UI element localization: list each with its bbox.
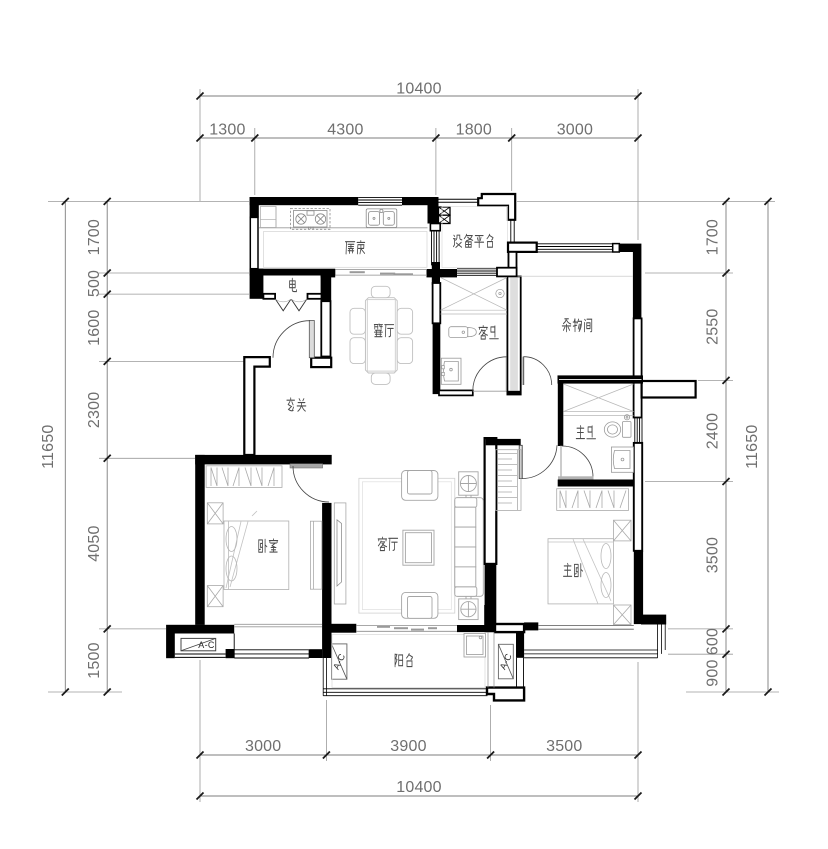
svg-text:500: 500 (86, 270, 103, 297)
svg-text:600: 600 (705, 628, 722, 655)
svg-text:3000: 3000 (557, 122, 593, 139)
svg-text:10400: 10400 (396, 81, 442, 98)
svg-text:2300: 2300 (86, 392, 103, 428)
svg-text:2550: 2550 (705, 308, 722, 344)
svg-text:1600: 1600 (86, 309, 103, 345)
svg-text:10400: 10400 (396, 779, 442, 796)
svg-text:11650: 11650 (40, 425, 57, 469)
svg-text:1800: 1800 (456, 122, 492, 139)
svg-text:2400: 2400 (705, 413, 722, 449)
svg-text:3500: 3500 (705, 537, 722, 573)
svg-text:3500: 3500 (546, 738, 582, 755)
svg-text:11650: 11650 (744, 425, 761, 469)
svg-text:900: 900 (705, 659, 722, 686)
svg-text:1300: 1300 (209, 122, 245, 139)
svg-text:1500: 1500 (86, 642, 103, 678)
svg-text:1700: 1700 (705, 219, 722, 255)
svg-text:3900: 3900 (390, 738, 426, 755)
svg-text:1700: 1700 (86, 219, 103, 255)
svg-text:4050: 4050 (86, 525, 103, 561)
svg-text:3000: 3000 (245, 738, 281, 755)
svg-text:A-C: A-C (198, 640, 215, 650)
svg-text:4300: 4300 (327, 122, 363, 139)
